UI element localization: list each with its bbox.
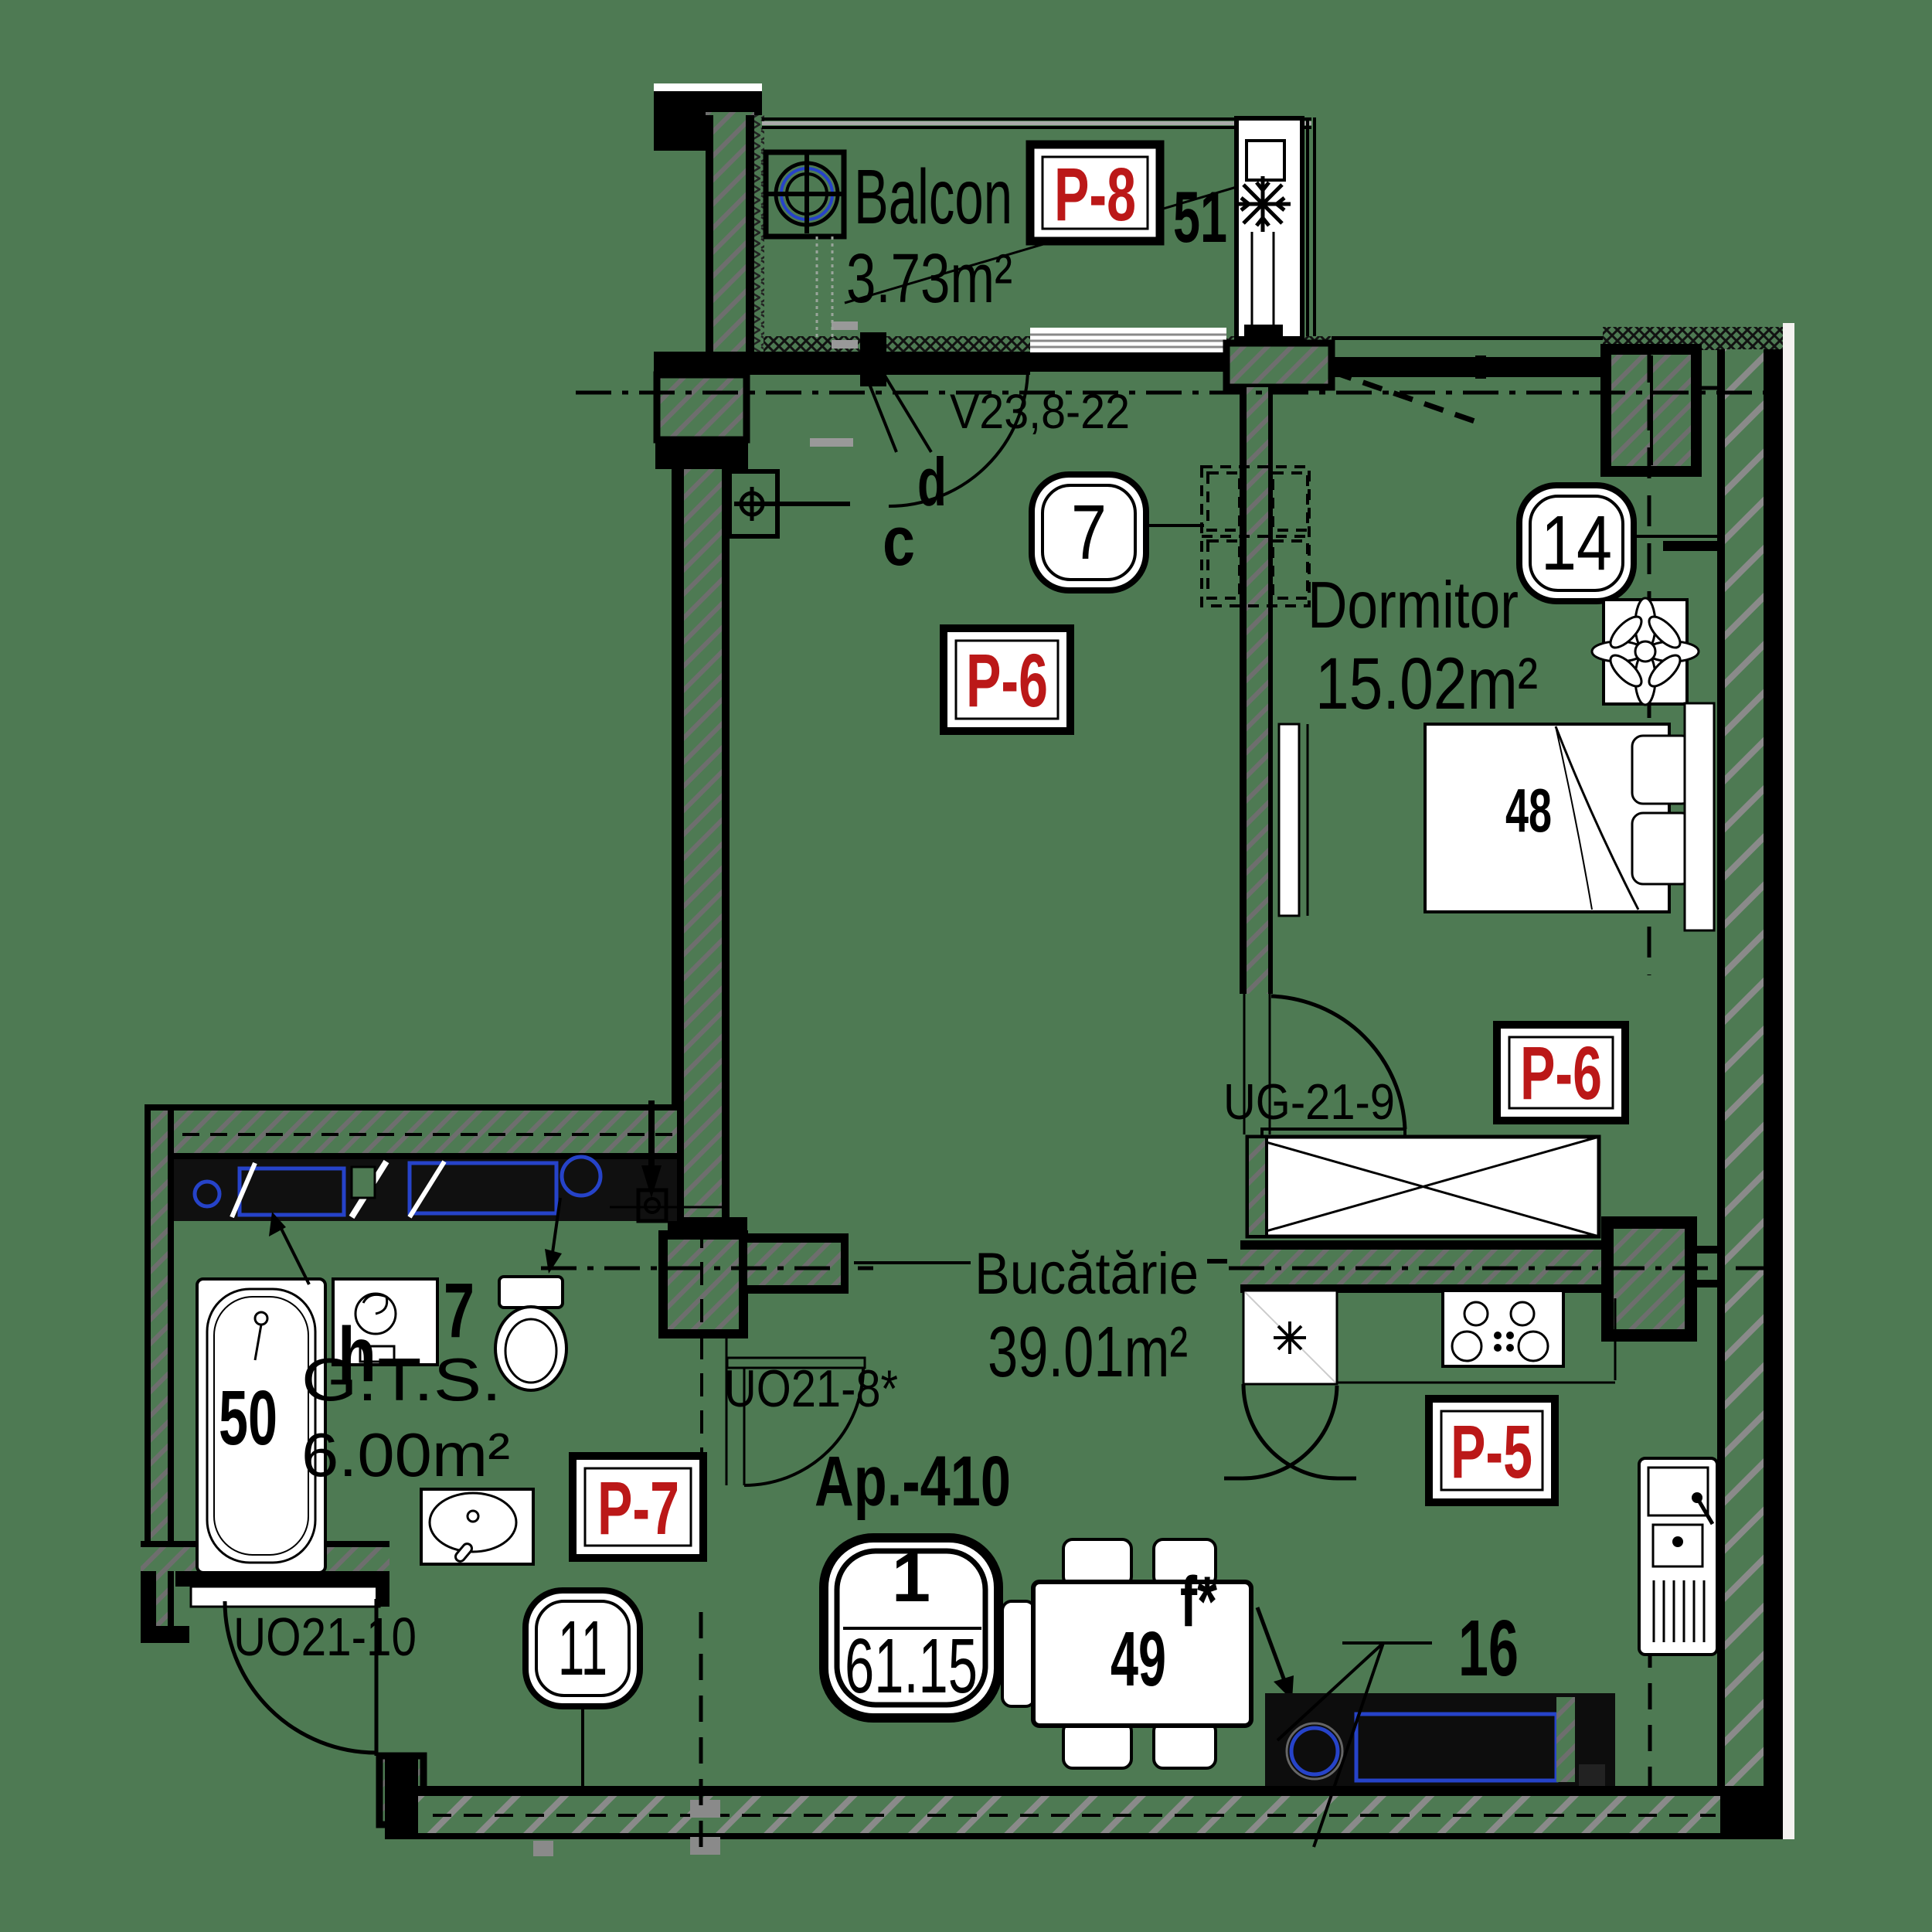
svg-text:UG-21-9: UG-21-9: [1223, 1073, 1395, 1130]
svg-text:51: 51: [1173, 176, 1227, 257]
svg-text:7: 7: [444, 1267, 474, 1354]
svg-text:P-6: P-6: [1520, 1031, 1602, 1115]
svg-text:UO21-10: UO21-10: [233, 1607, 417, 1667]
svg-text:3.73m²: 3.73m²: [846, 240, 1012, 318]
svg-text:c: c: [883, 503, 915, 580]
svg-text:61.15: 61.15: [845, 1623, 978, 1709]
svg-text:6.00m²: 6.00m²: [301, 1420, 510, 1489]
svg-text:48: 48: [1505, 776, 1552, 845]
svg-text:d: d: [917, 444, 947, 520]
svg-text:Ap.-410: Ap.-410: [815, 1442, 1011, 1521]
svg-text:49: 49: [1111, 1616, 1166, 1702]
svg-text:14: 14: [1541, 500, 1612, 587]
svg-text:V23,8-22: V23,8-22: [950, 385, 1130, 439]
svg-text:Balcon: Balcon: [854, 154, 1012, 240]
svg-text:G.T.S.: G.T.S.: [301, 1345, 502, 1413]
svg-text:50: 50: [219, 1375, 277, 1461]
svg-text:11: 11: [558, 1605, 607, 1692]
svg-text:15.02m²: 15.02m²: [1315, 643, 1538, 725]
svg-text:P-5: P-5: [1451, 1410, 1532, 1494]
svg-text:f*: f*: [1180, 1563, 1217, 1641]
svg-text:Dormitor: Dormitor: [1308, 569, 1519, 642]
svg-text:P-7: P-7: [597, 1466, 679, 1550]
svg-text:7: 7: [1071, 489, 1107, 576]
svg-text:39.01m²: 39.01m²: [988, 1311, 1188, 1392]
svg-text:P-6: P-6: [966, 638, 1048, 723]
svg-text:1: 1: [892, 1539, 930, 1617]
svg-text:P-8: P-8: [1054, 152, 1136, 236]
svg-text:Bucătărie: Bucătărie: [975, 1241, 1199, 1307]
svg-text:UO21-8*: UO21-8*: [724, 1359, 898, 1418]
svg-text:16: 16: [1458, 1604, 1519, 1692]
